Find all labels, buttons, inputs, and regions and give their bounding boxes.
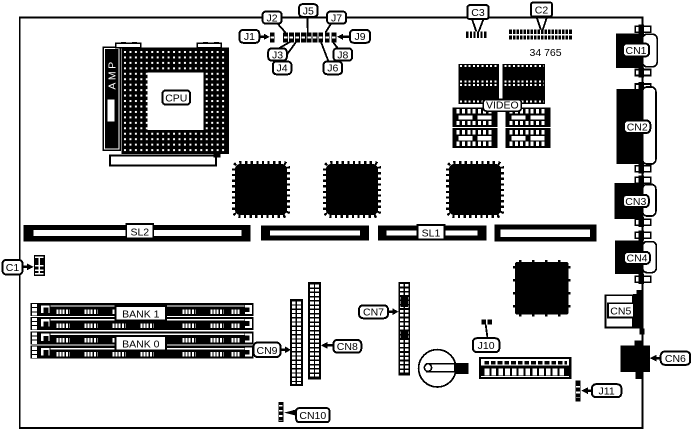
svg-text:34 765: 34 765 — [530, 47, 562, 59]
svg-text:J2: J2 — [267, 12, 278, 24]
svg-text:J3: J3 — [272, 49, 283, 61]
svg-text:J9: J9 — [354, 31, 365, 43]
svg-text:J8: J8 — [337, 49, 348, 61]
svg-text:CN7: CN7 — [363, 307, 384, 319]
svg-text:J11: J11 — [599, 386, 615, 398]
svg-text:J1: J1 — [244, 31, 255, 43]
svg-text:CPU: CPU — [165, 93, 187, 105]
svg-text:CN6: CN6 — [665, 353, 686, 365]
svg-text:VIDEO: VIDEO — [486, 100, 519, 112]
svg-text:J6: J6 — [327, 63, 338, 75]
svg-text:J4: J4 — [277, 63, 288, 75]
svg-text:C3: C3 — [471, 7, 485, 19]
svg-text:CN5: CN5 — [610, 305, 631, 317]
svg-text:J10: J10 — [478, 340, 495, 352]
svg-text:SL1: SL1 — [422, 227, 441, 239]
svg-text:CN8: CN8 — [337, 341, 358, 353]
svg-text:C2: C2 — [535, 5, 549, 17]
svg-text:C1: C1 — [6, 262, 20, 274]
svg-text:CN1: CN1 — [625, 45, 646, 57]
svg-text:J7: J7 — [331, 12, 342, 24]
svg-text:CN10: CN10 — [299, 410, 326, 422]
svg-text:CN4: CN4 — [626, 253, 647, 265]
svg-text:BANK 0: BANK 0 — [122, 338, 160, 350]
svg-text:AMP: AMP — [106, 59, 118, 89]
svg-text:BANK 1: BANK 1 — [122, 309, 160, 321]
svg-text:CN2: CN2 — [627, 122, 648, 134]
svg-text:CN3: CN3 — [625, 196, 646, 208]
svg-text:J5: J5 — [303, 5, 314, 17]
svg-text:SL2: SL2 — [130, 226, 149, 238]
svg-text:CN9: CN9 — [256, 345, 277, 357]
